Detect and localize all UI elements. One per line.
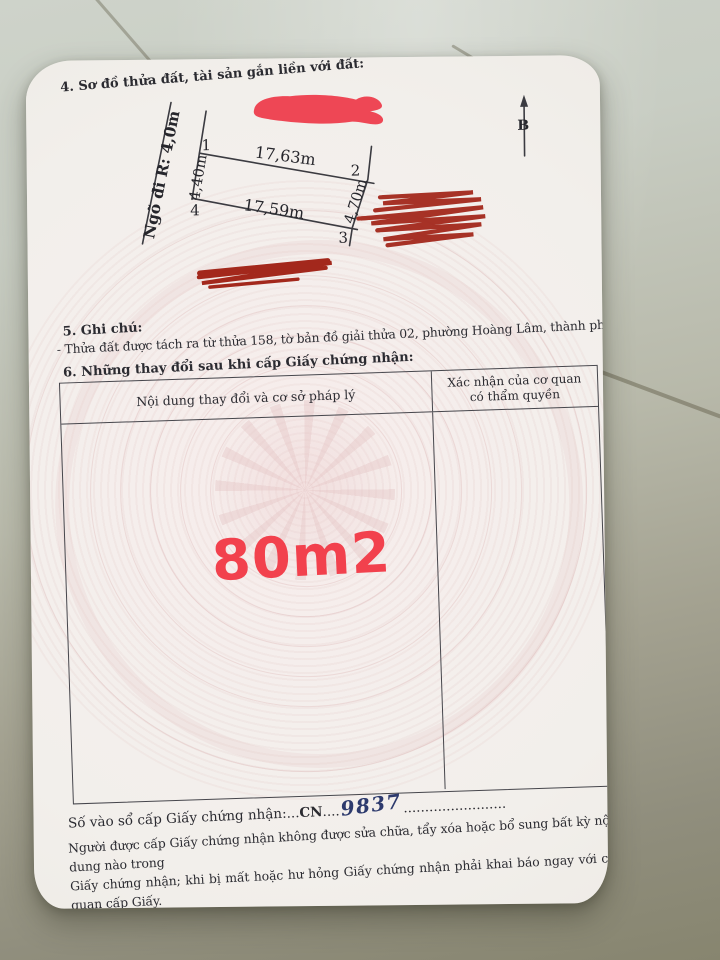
area-annotation: 80m2 [210,520,392,594]
registry-code-prefix: CN [299,804,323,821]
paper-surface: 4. Sơ đồ thửa đất, tài sản gắn liền với … [26,55,609,909]
corner-label-3: 3 [338,229,348,247]
edge-length-bottom: 17,59m [242,195,305,223]
corner-label-2: 2 [351,162,361,180]
plot-diagram: 1 2 3 4 17,63m 17,59m 4,40m 4,70m Ngõ đi… [121,83,568,303]
corner-label-4: 4 [190,201,200,219]
edge-length-top: 17,63m [254,143,317,170]
alley-label: Ngõ đi R: 4,0m [139,108,183,240]
section5-title: 5. Ghi chú: [62,320,142,339]
photo-of-land-certificate: 4. Sơ đồ thửa đất, tài sản gắn liền với … [0,0,720,960]
tile-grout-line [94,0,157,68]
corner-label-1: 1 [201,136,211,154]
changes-table-body: 80m2 [61,407,608,802]
changes-table-column-divider [432,412,445,789]
redaction-scribble-right [358,192,486,245]
north-label: B [517,118,529,134]
dot-leader: .... [322,803,340,820]
north-arrow-head [520,95,528,107]
changes-table: Nội dung thay đổi và cơ sở pháp lý Xác n… [59,365,608,805]
registry-label: Số vào sổ cấp Giấy chứng nhận: [68,806,287,832]
changes-table-confirm-header: Xác nhận của cơ quan có thẩm quyền [431,366,598,411]
confirm-header-line2: có thẩm quyền [470,387,561,405]
redaction-scribble-top [254,94,384,126]
dot-leader: ........................ [403,796,507,817]
certificate-page: 4. Sơ đồ thửa đất, tài sản gắn liền với … [26,55,609,909]
redaction-scribble-bottom [199,261,332,287]
edge-length-left: 4,40m [187,153,210,201]
dot-leader: ... [286,805,300,822]
tile-grout-line [595,368,720,419]
